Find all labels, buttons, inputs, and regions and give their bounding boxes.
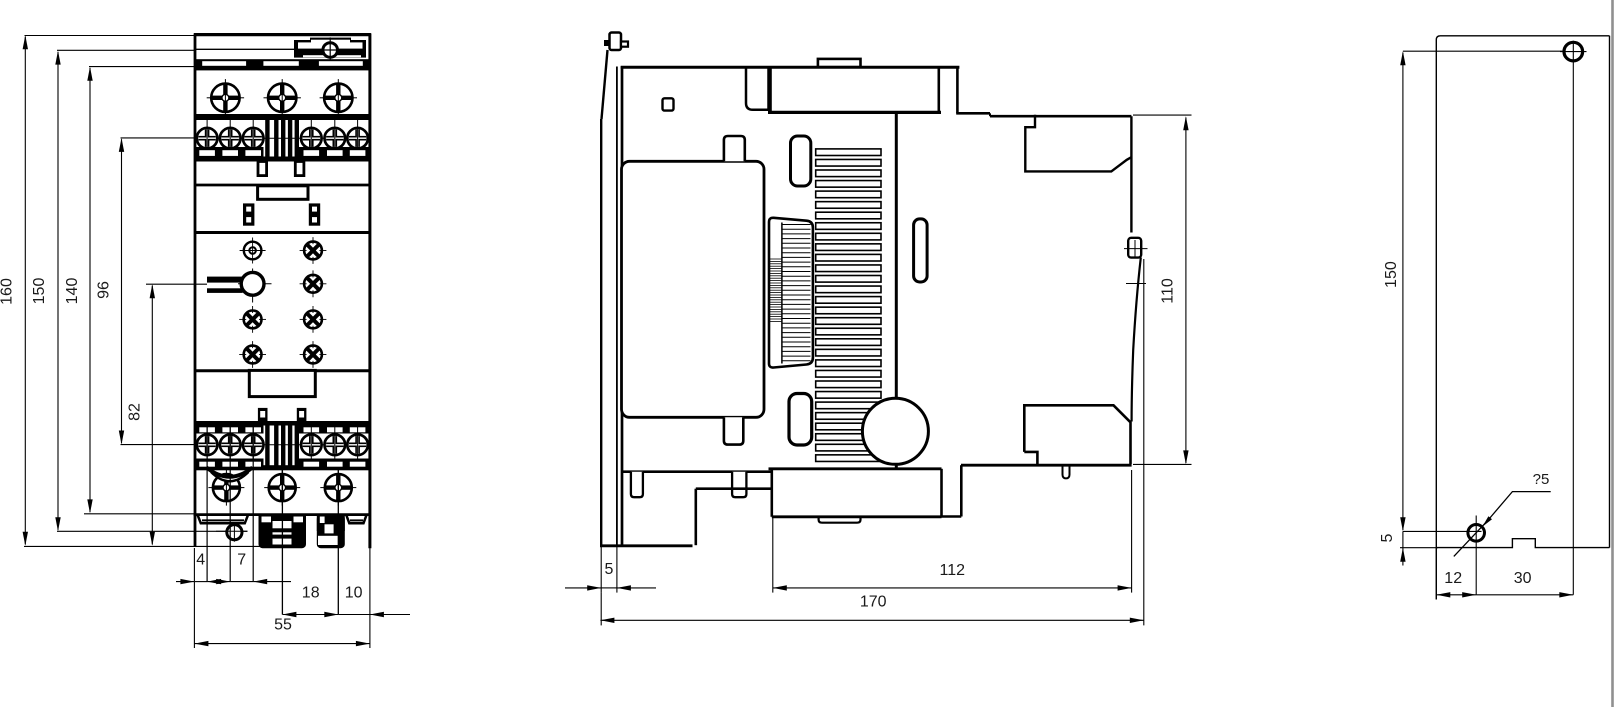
svg-text:5: 5: [605, 561, 614, 578]
svg-text:96: 96: [96, 281, 113, 299]
svg-text:82: 82: [126, 403, 143, 421]
svg-text:4: 4: [196, 552, 205, 569]
svg-text:18: 18: [302, 585, 320, 602]
svg-text:55: 55: [274, 617, 292, 634]
svg-text:10: 10: [345, 585, 363, 602]
svg-text:112: 112: [940, 562, 966, 579]
svg-text:5: 5: [1379, 533, 1396, 542]
svg-text:150: 150: [31, 278, 48, 305]
svg-text:30: 30: [1514, 570, 1532, 587]
svg-text:150: 150: [1383, 261, 1400, 288]
svg-text:?5: ?5: [1533, 471, 1550, 488]
svg-text:170: 170: [860, 594, 887, 611]
svg-text:7: 7: [237, 552, 246, 569]
svg-text:12: 12: [1444, 570, 1462, 587]
svg-text:160: 160: [0, 278, 15, 305]
svg-text:110: 110: [1159, 278, 1176, 304]
svg-text:140: 140: [64, 278, 81, 305]
